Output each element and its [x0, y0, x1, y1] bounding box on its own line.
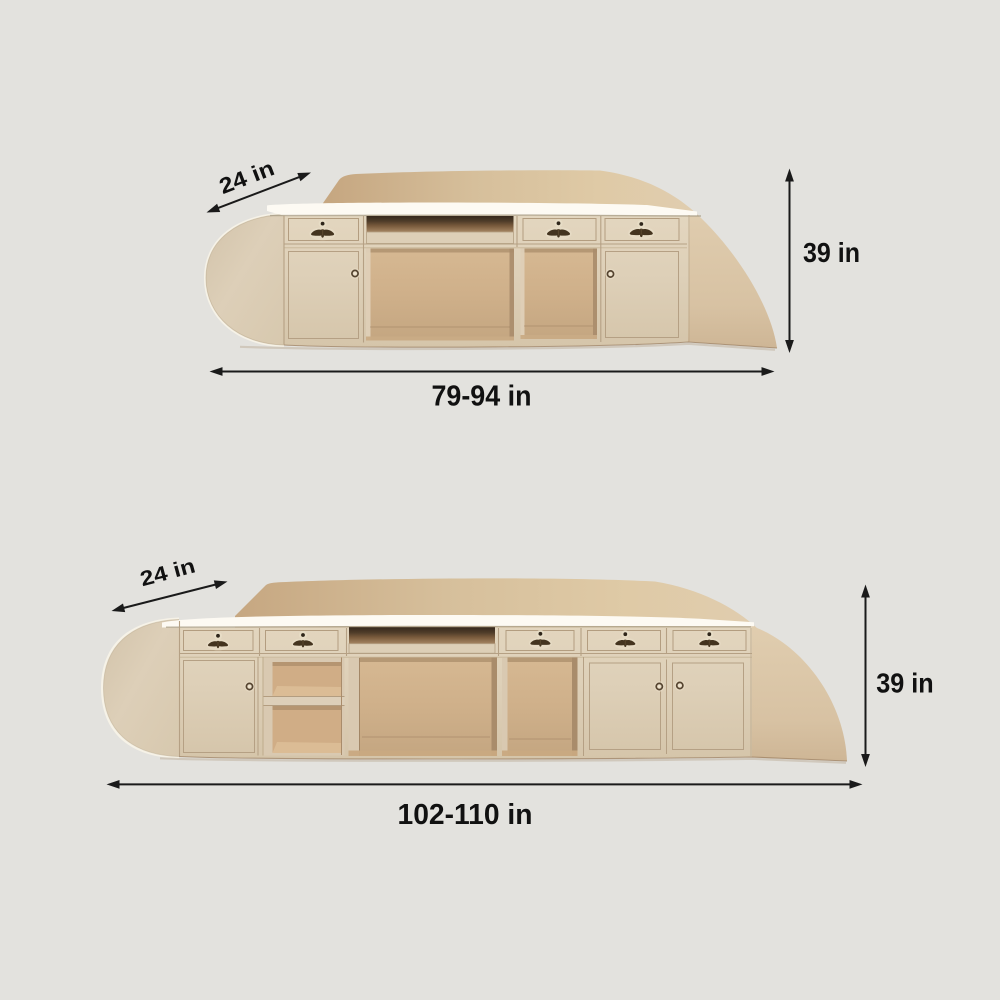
svg-text:24 in: 24 in: [216, 155, 278, 199]
svg-text:24 in: 24 in: [138, 555, 198, 592]
svg-text:79-94 in: 79-94 in: [432, 381, 532, 413]
svg-text:39 in: 39 in: [876, 668, 933, 699]
svg-text:102-110 in: 102-110 in: [398, 799, 533, 831]
svg-text:39 in: 39 in: [803, 237, 860, 268]
